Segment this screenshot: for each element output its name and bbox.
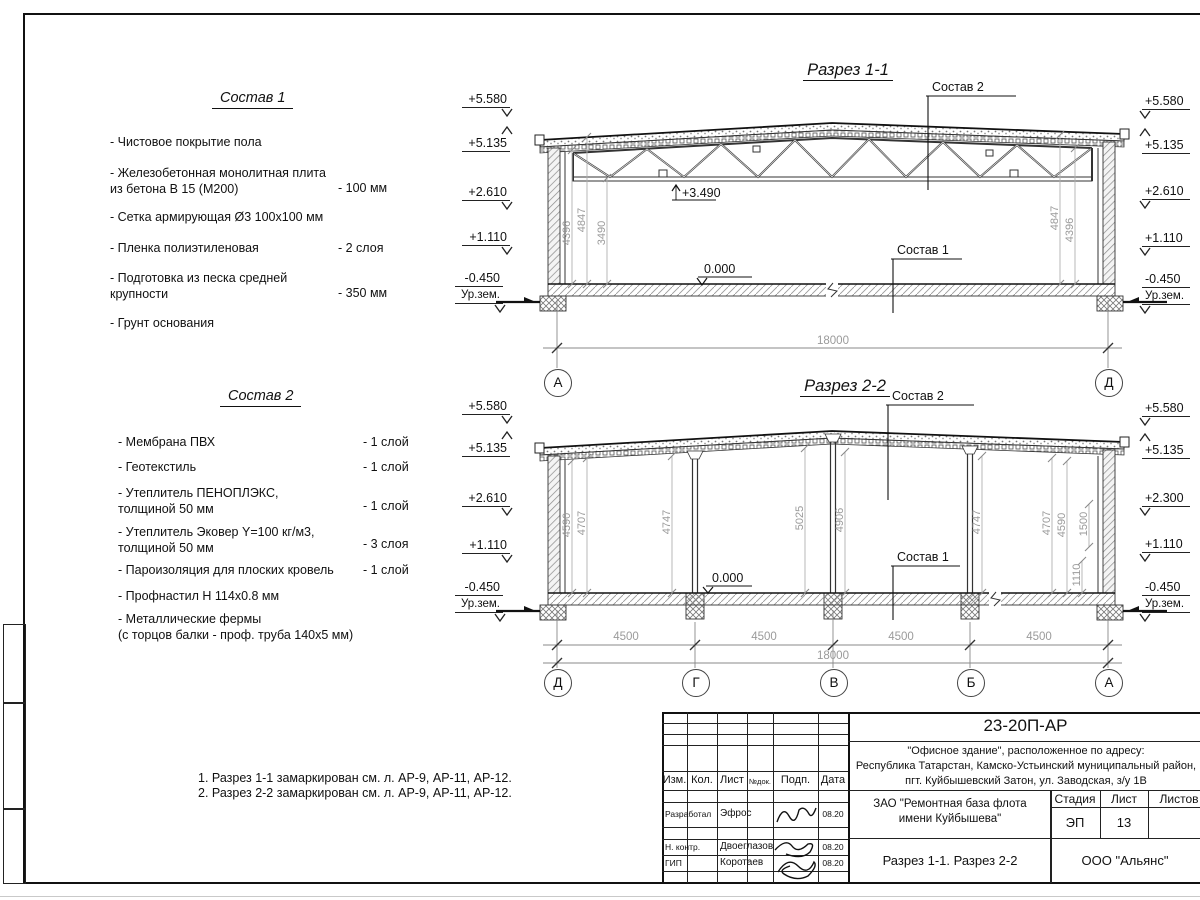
list-item: - Профнастил Н 114х0.8 мм — [118, 589, 368, 605]
walls — [548, 450, 1115, 593]
sostav2-callout: Состав 2 — [932, 80, 984, 94]
elevation-mark: -0.450Ур.зем. — [1142, 272, 1190, 305]
list-item-value: - 1 слой — [363, 435, 409, 449]
list-item: - Сетка армирующая Ø3 100х100 мм — [110, 210, 360, 226]
elevation-mark: +1.110 — [462, 230, 510, 246]
sheet-number: 13 — [1100, 815, 1148, 830]
zero-level: 0.000 — [704, 262, 735, 276]
signer-name: Коротаев — [720, 857, 763, 868]
list-item: - Мембрана ПВХ — [118, 435, 368, 451]
sheet-title: Разрез 1-1. Разрез 2-2 — [850, 853, 1050, 868]
elevation-mark: +5.135 — [462, 441, 510, 457]
sign-date: 08.20 — [819, 809, 847, 819]
vertical-dim: 4396 — [561, 215, 573, 251]
elevation-mark: +2.610 — [1142, 184, 1190, 200]
list-item: - Грунт основания — [110, 316, 360, 332]
list-item-value: - 1 слой — [363, 499, 409, 513]
elevation-mark: +1.110 — [1142, 537, 1190, 553]
signer-name: Двоеглазов — [720, 841, 773, 852]
sostav2-callout: Состав 2 — [892, 389, 944, 403]
elevation-note: +3.490 — [682, 186, 721, 200]
elevation-mark: -0.450Ур.зем. — [455, 580, 503, 613]
section-1-1-title: Разрез 1-1 — [793, 61, 903, 80]
sheets-label: Листов — [1148, 792, 1200, 806]
list-item-value: - 1 слой — [363, 563, 409, 577]
total-dim: 18000 — [798, 335, 868, 347]
sign-date: 08.20 — [819, 842, 847, 852]
list-item-value: - 3 слоя — [363, 537, 408, 551]
elevation-mark: +5.135 — [462, 136, 510, 152]
col-header: Изм. — [662, 774, 687, 786]
list-item: - Подготовка из песка средней крупности — [110, 271, 360, 302]
margin-box — [3, 702, 26, 810]
elevation-mark: +5.580 — [1142, 94, 1190, 110]
sostav2-title: Состав 2 — [220, 388, 301, 407]
elevation-mark: +5.580 — [462, 399, 510, 415]
list-item: - Чистовое покрытие пола — [110, 135, 360, 151]
dimension-chain — [543, 300, 1122, 368]
vertical-dim: 4906 — [834, 502, 846, 538]
list-item-value: - 2 слоя — [338, 241, 383, 255]
vertical-dim: 4747 — [971, 504, 983, 540]
axis-bubble: Д — [544, 669, 572, 697]
total-dim: 18000 — [798, 650, 868, 662]
zero-level: 0.000 — [712, 571, 743, 585]
elevation-mark: +5.135 — [1142, 138, 1190, 154]
vertical-dim: 1110 — [1071, 557, 1083, 593]
vertical-dim: 4590 — [561, 507, 573, 543]
note-line: 2. Разрез 2-2 замаркирован см. л. АР-9, … — [198, 786, 512, 800]
stage-value: ЭП — [1050, 815, 1100, 830]
list-item: - Железобетонная монолитная плита из бет… — [110, 166, 360, 197]
signature — [770, 836, 820, 881]
elevation-mark: +1.110 — [462, 538, 510, 554]
col-header: №док. — [747, 777, 773, 786]
frame-top — [23, 13, 1200, 15]
list-item-value: - 100 мм — [338, 181, 387, 195]
elevation-mark: -0.450Ур.зем. — [1142, 580, 1190, 613]
axis-bubble: А — [1095, 669, 1123, 697]
note-line: 1. Разрез 1-1 замаркирован см. л. АР-9, … — [198, 771, 512, 785]
vertical-dim: 3490 — [596, 215, 608, 251]
vertical-dim: 4847 — [576, 202, 588, 238]
elevation-mark: +5.580 — [462, 92, 510, 108]
list-item: - Пленка полиэтиленовая — [110, 241, 360, 257]
list-item: - Геотекстиль — [118, 460, 368, 476]
customer: ЗАО "Ремонтная база флота имени Куйбышев… — [850, 797, 1050, 827]
elevation-mark: +2.300 — [1142, 491, 1190, 507]
vertical-dim: 4847 — [1049, 200, 1061, 236]
axis-bubble: В — [820, 669, 848, 697]
vertical-dim: 4396 — [1064, 212, 1076, 248]
frame-bottom — [23, 882, 1200, 884]
sheet-edge — [0, 896, 1200, 897]
section-2-2-title: Разрез 2-2 — [790, 377, 900, 396]
col-header: Кол. — [687, 774, 717, 786]
list-item: - Утеплитель Эковер Y=100 кг/м3, толщино… — [118, 525, 368, 556]
walls — [548, 142, 1115, 284]
project-address: "Офисное здание", расположенное по адрес… — [850, 744, 1200, 789]
list-item: - Пароизоляция для плоских кровель — [118, 563, 368, 579]
sostav1-callout: Состав 1 — [897, 243, 949, 257]
list-item-value: - 1 слой — [363, 460, 409, 474]
span-dim: 4500 — [866, 631, 936, 643]
vertical-dim: 4590 — [1056, 507, 1068, 543]
signer-role: Разработал — [665, 809, 711, 819]
floor-slab — [496, 283, 1167, 311]
drawing-sheet: Состав 1 - Чистовое покрытие пола - Желе… — [0, 0, 1200, 900]
stage-label: Стадия — [1050, 792, 1100, 806]
signature — [774, 803, 818, 826]
vertical-dim: 4707 — [576, 505, 588, 541]
vertical-dim: 4707 — [1041, 505, 1053, 541]
elevation-mark: +1.110 — [1142, 231, 1190, 247]
columns — [686, 434, 979, 619]
span-dim: 4500 — [591, 631, 661, 643]
list-item-value: - 350 мм — [338, 286, 387, 300]
elevation-mark: -0.450Ур.зем. — [455, 271, 503, 304]
doc-number: 23-20П-АР — [848, 716, 1200, 736]
vertical-dim: 5025 — [794, 500, 806, 536]
elevation-mark: +2.610 — [462, 491, 510, 507]
elevation-mark: +5.135 — [1142, 443, 1190, 459]
list-item: - Металлические фермы (с торцов балки - … — [118, 612, 418, 643]
elevation-mark: +2.610 — [462, 185, 510, 201]
vertical-dim: 4747 — [661, 504, 673, 540]
sheet-label: Лист — [1100, 792, 1148, 806]
titleblock-border — [662, 712, 1200, 714]
col-header: Лист — [717, 774, 747, 786]
col-header: Подп. — [773, 774, 818, 786]
sostav1-title: Состав 1 — [212, 90, 293, 109]
axis-bubble: Б — [957, 669, 985, 697]
signer-name: Эфрос — [720, 808, 752, 819]
company: ООО "Альянс" — [1050, 853, 1200, 868]
axis-bubble: Г — [682, 669, 710, 697]
margin-box — [3, 624, 26, 704]
titleblock-border — [662, 712, 664, 883]
signer-role: ГИП — [665, 858, 682, 868]
col-header: Дата — [818, 774, 848, 786]
interior-dim-lines — [568, 131, 1079, 288]
margin-box — [3, 808, 26, 884]
signer-role: Н. контр. — [665, 842, 700, 852]
sostav1-callout: Состав 1 — [897, 550, 949, 564]
span-dim: 4500 — [729, 631, 799, 643]
span-dim: 4500 — [1004, 631, 1074, 643]
vertical-dim: 1500 — [1078, 506, 1090, 542]
sign-date: 08.20 — [819, 858, 847, 868]
elevation-mark: +5.580 — [1142, 401, 1190, 417]
list-item: - Утеплитель ПЕНОПЛЭКС, толщиной 50 мм — [118, 486, 368, 517]
